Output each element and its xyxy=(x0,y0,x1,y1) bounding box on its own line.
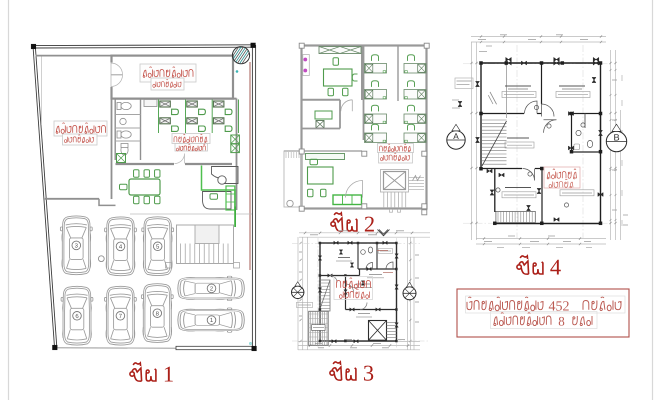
svg-text:8: 8 xyxy=(558,314,565,329)
svg-text:1: 1 xyxy=(163,362,174,387)
svg-text:B: B xyxy=(613,133,619,143)
svg-text:452: 452 xyxy=(549,300,570,315)
svg-text:3: 3 xyxy=(363,361,374,386)
svg-text:4: 4 xyxy=(550,255,561,280)
svg-text:A: A xyxy=(453,132,459,141)
